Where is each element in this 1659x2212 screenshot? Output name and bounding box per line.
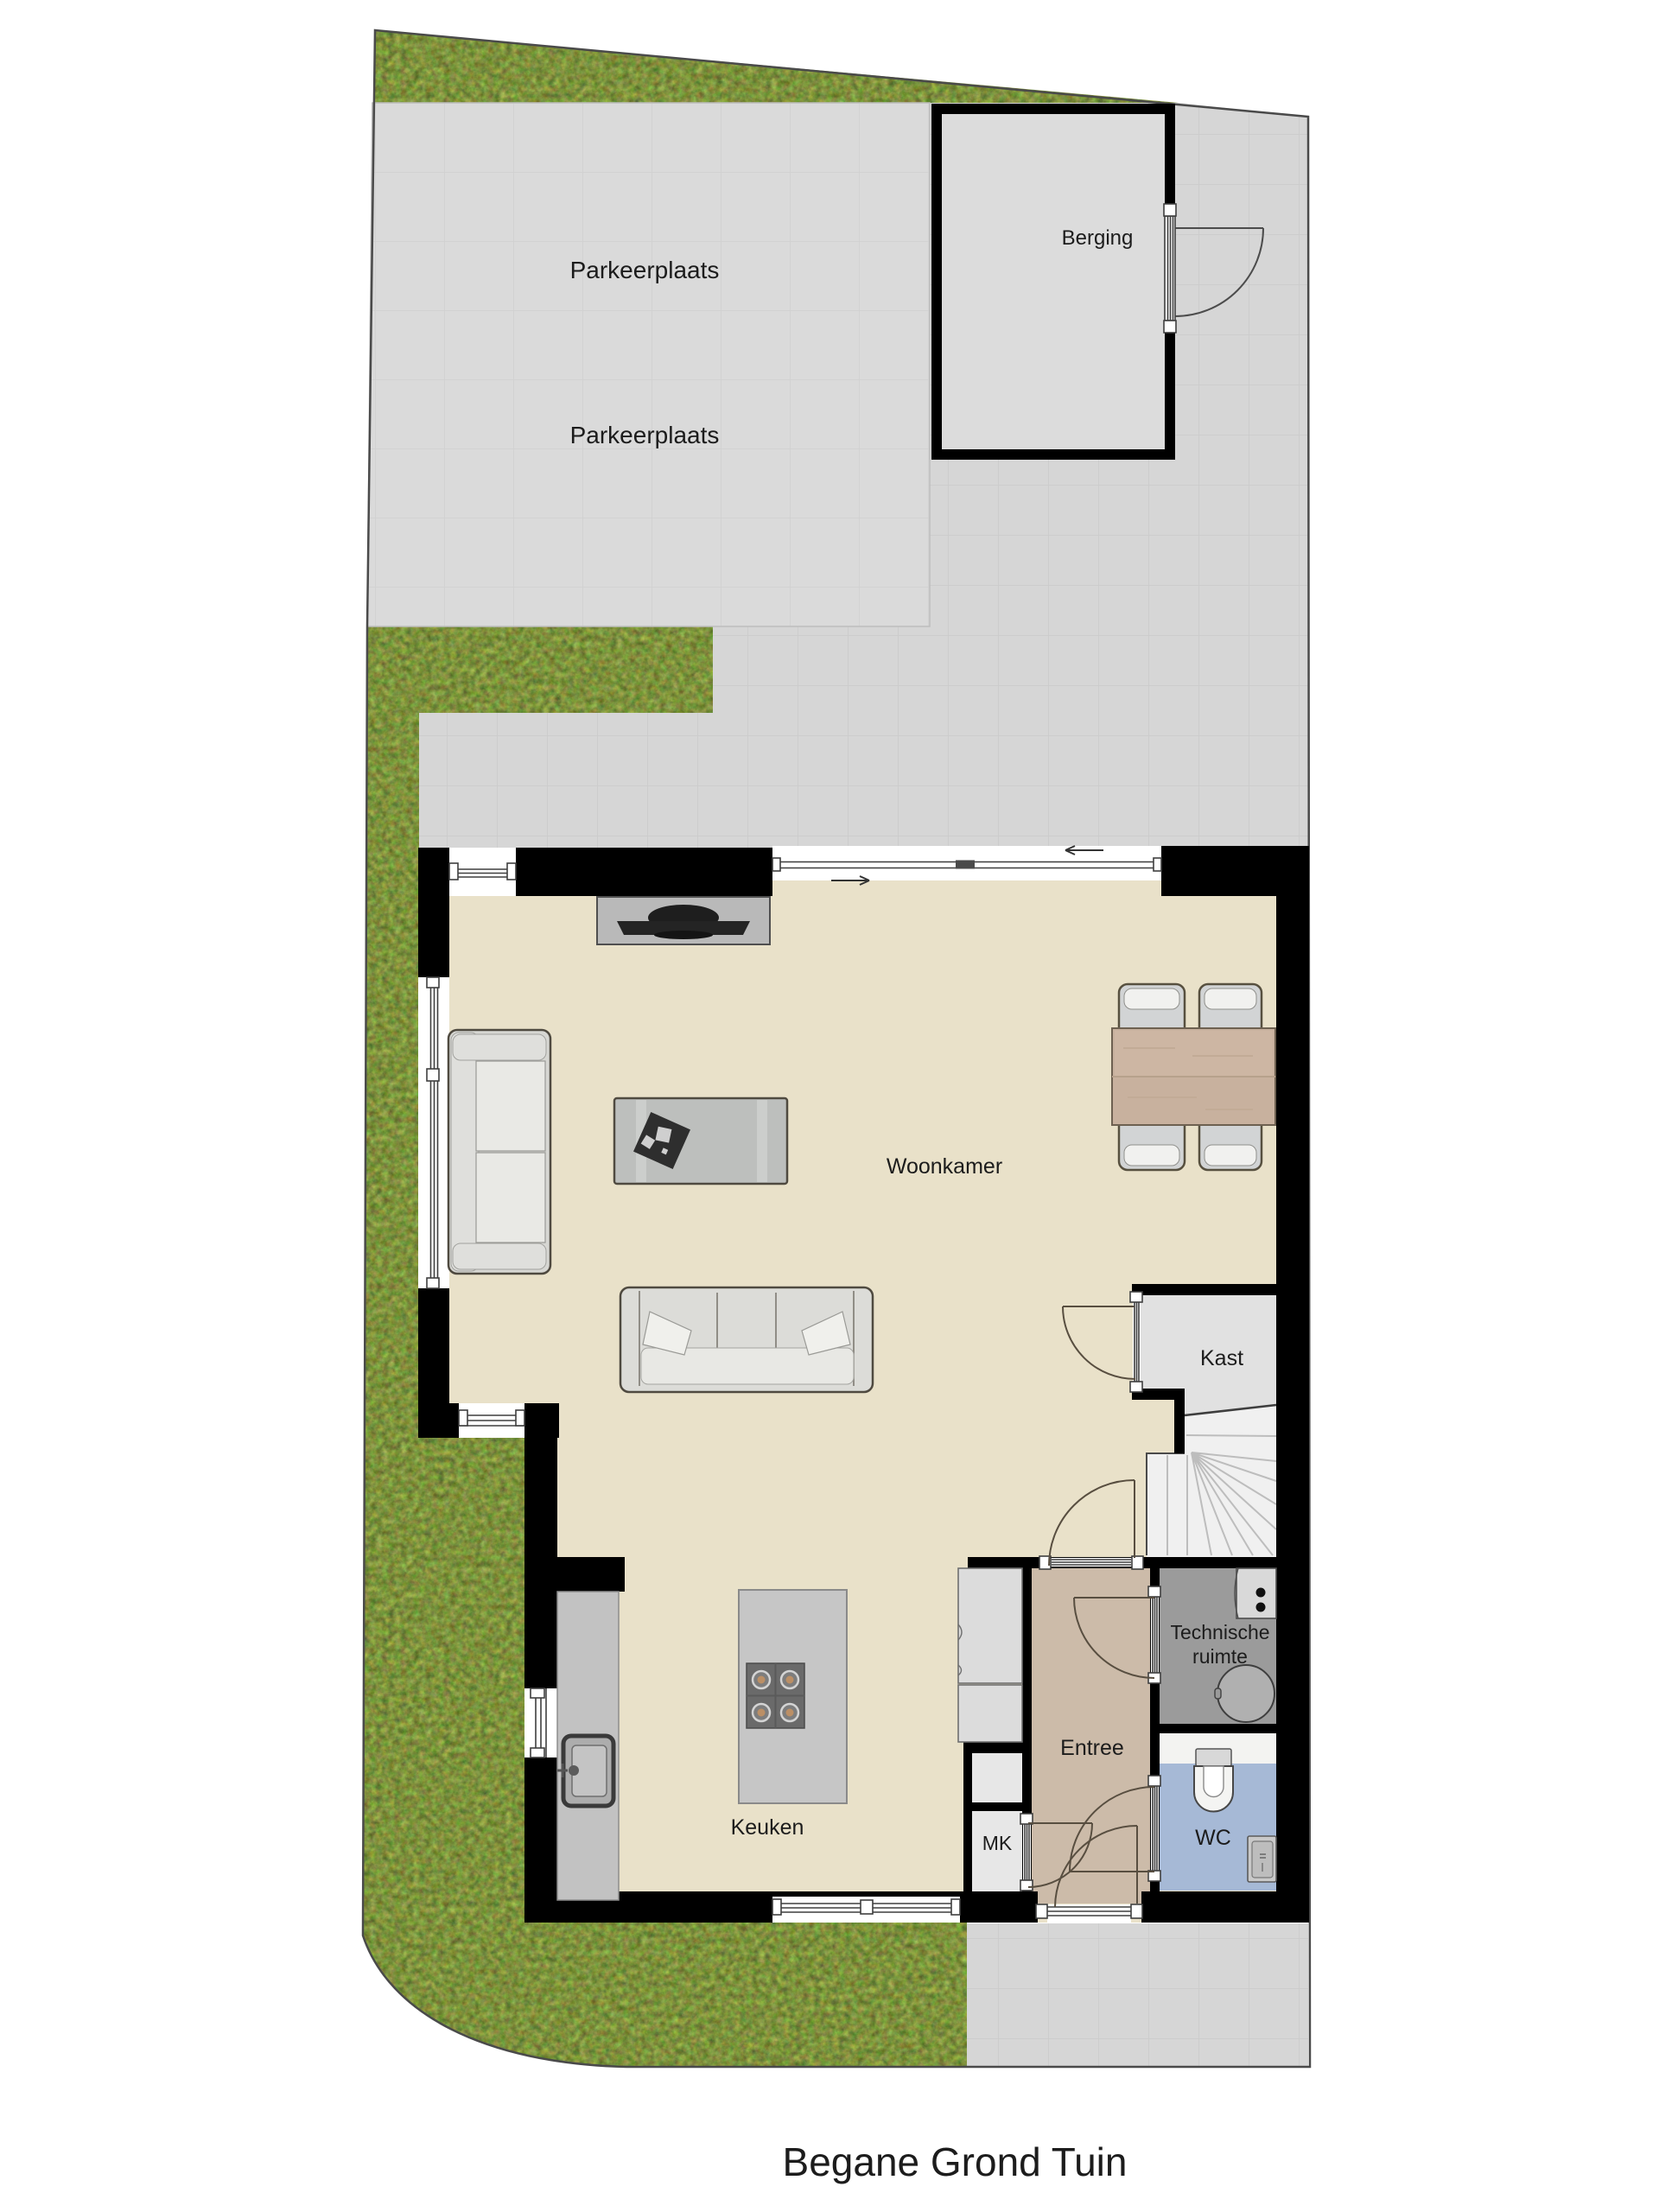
svg-text:Begane Grond Tuin: Begane Grond Tuin — [783, 2139, 1128, 2184]
svg-text:MK: MK — [982, 1832, 1013, 1854]
svg-text:Technische: Technische — [1170, 1621, 1269, 1643]
svg-text:Keuken: Keuken — [731, 1815, 804, 1840]
svg-text:ruimte: ruimte — [1192, 1645, 1248, 1668]
svg-text:Parkeerplaats: Parkeerplaats — [570, 257, 720, 283]
svg-text:Parkeerplaats: Parkeerplaats — [570, 422, 720, 448]
svg-text:Berging: Berging — [1062, 226, 1134, 250]
svg-text:Kast: Kast — [1200, 1346, 1243, 1370]
svg-text:WC: WC — [1195, 1826, 1231, 1850]
svg-text:Woonkamer: Woonkamer — [887, 1154, 1002, 1179]
svg-text:Entree: Entree — [1060, 1736, 1124, 1760]
